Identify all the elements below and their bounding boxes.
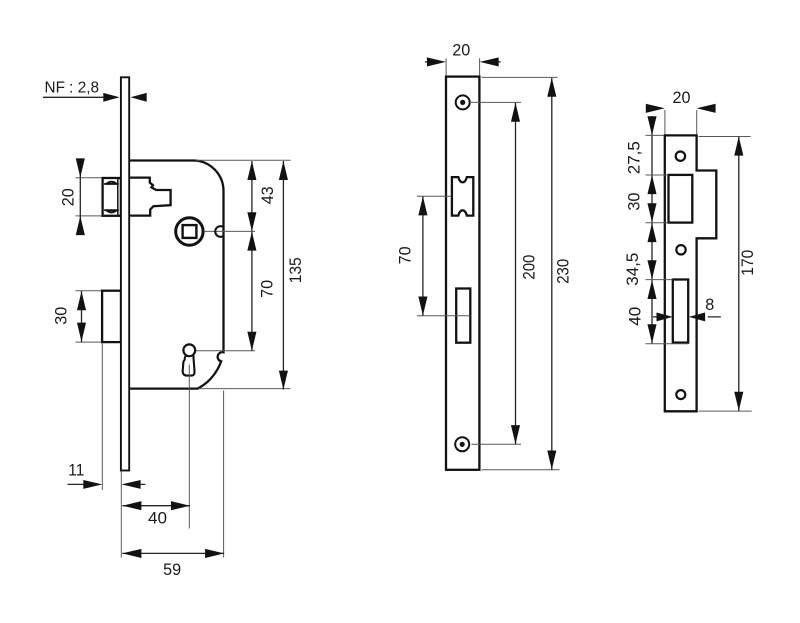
svg-text:59: 59 <box>163 561 181 579</box>
svg-text:230: 230 <box>555 259 573 284</box>
svg-text:27,5: 27,5 <box>626 141 644 174</box>
svg-text:NF : 2,8: NF : 2,8 <box>45 80 100 97</box>
svg-text:30: 30 <box>53 307 71 325</box>
svg-text:43: 43 <box>259 186 277 204</box>
svg-text:40: 40 <box>148 510 167 528</box>
svg-text:170: 170 <box>739 250 757 276</box>
svg-text:200: 200 <box>520 255 538 280</box>
svg-text:20: 20 <box>60 188 78 206</box>
svg-text:11: 11 <box>68 462 84 480</box>
svg-text:135: 135 <box>287 257 305 283</box>
svg-text:70: 70 <box>397 246 415 264</box>
svg-text:30: 30 <box>626 193 644 211</box>
svg-text:20: 20 <box>673 89 691 107</box>
svg-text:70: 70 <box>259 280 277 298</box>
svg-text:40: 40 <box>626 307 644 326</box>
svg-text:20: 20 <box>452 41 470 59</box>
svg-text:34,5: 34,5 <box>624 253 642 286</box>
svg-text:8: 8 <box>705 296 714 314</box>
